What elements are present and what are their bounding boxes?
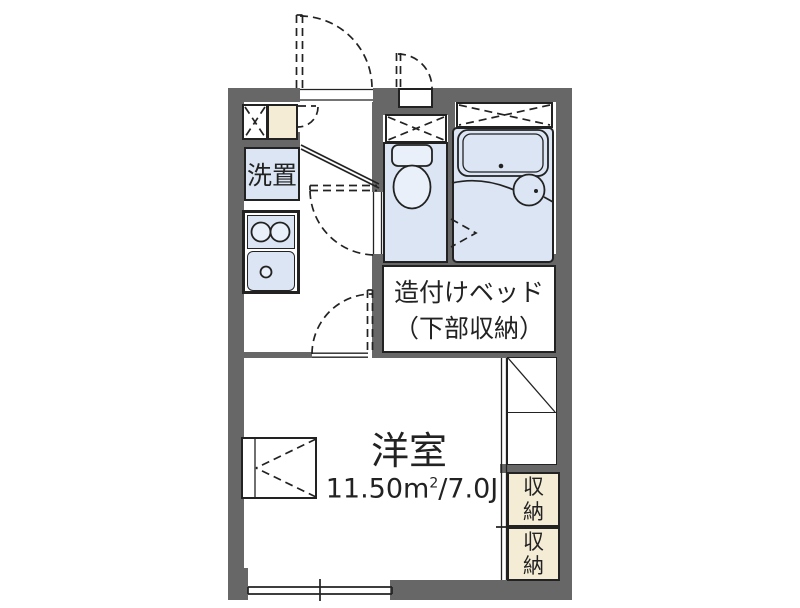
shoe-cabinet-door-swing — [298, 106, 318, 127]
main-room-area: 11.50m2/7.0J — [326, 473, 499, 504]
bay-window-open-mark — [255, 438, 316, 498]
main-room-area-suffix: /7.0J — [438, 473, 498, 504]
stove-burners — [252, 223, 290, 242]
entrance-step-line — [301, 145, 379, 188]
bath-basin — [452, 175, 553, 206]
toilet-window-x — [388, 117, 444, 140]
utility-door-swing — [397, 53, 433, 88]
toilet-fixture — [392, 145, 432, 209]
floor-plan: 洗置 造付けベッド （下部収納） 収納 収納 — [0, 0, 800, 608]
bottom-sliding-window — [248, 579, 392, 601]
main-room-area-sup: 2 — [429, 475, 438, 491]
bath-door-mark — [451, 219, 476, 247]
entrance-threshold-lines — [300, 90, 373, 101]
main-room-name: 洋室 — [371, 430, 447, 474]
bath-window-x — [459, 105, 550, 125]
entrance-door-swing — [297, 15, 373, 88]
sink-drain — [261, 267, 272, 278]
vent-window-x — [245, 107, 265, 137]
living-door-swing — [312, 290, 373, 357]
plan-linework — [0, 0, 800, 608]
toilet-door-swing — [310, 186, 382, 256]
bathtub — [458, 130, 548, 176]
closet-slider-track — [496, 358, 514, 580]
refrigerator-diagonal — [508, 358, 555, 412]
main-room-area-value: 11.50m — [326, 473, 430, 504]
